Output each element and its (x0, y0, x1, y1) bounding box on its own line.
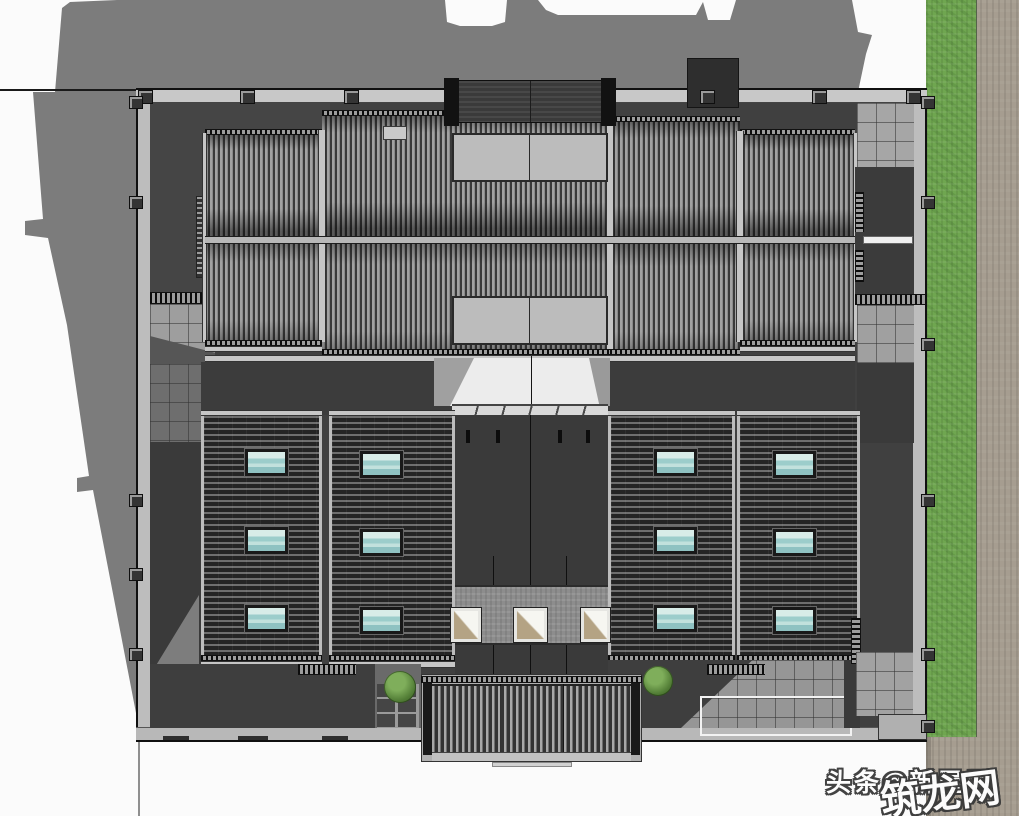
south-roof-top-fascia-b (329, 410, 455, 416)
skylight-window (245, 449, 288, 476)
skylight-window (654, 527, 697, 554)
pilaster-cap (921, 720, 935, 733)
grass-strip (926, 0, 977, 737)
site-boundary-line-west (0, 89, 140, 91)
southeast-courtyard (856, 652, 913, 716)
roof-panel-north-seam (529, 134, 530, 181)
eave-fascia-a (205, 346, 322, 352)
south-roof-top-fascia-c (608, 410, 735, 416)
shrub (643, 666, 673, 696)
eave-fascia-d (740, 346, 855, 352)
southeast-ridged-eave (707, 664, 765, 675)
pilaster-cap (129, 196, 143, 209)
pilaster-cap (344, 90, 359, 104)
shrub (384, 671, 416, 703)
entrance-step (492, 762, 572, 767)
north-gate-roof-seam (530, 81, 531, 122)
pilaster-cap (921, 96, 935, 109)
pilaster-cap (240, 90, 255, 104)
entrance-gate-seam-east (563, 684, 564, 754)
pilaster-cap (129, 96, 143, 109)
roof-panel-north (452, 133, 608, 182)
pilaster-cap (921, 338, 935, 351)
entrance-gate-seam-west (500, 684, 501, 754)
northeast-courtyard (857, 103, 914, 167)
skylight-window (654, 449, 697, 476)
east-connector-roof-1 (855, 192, 864, 232)
pilaster-cap (906, 90, 921, 104)
east-walkway (863, 236, 913, 244)
east-ridged-eave (855, 294, 927, 305)
door-mark (322, 736, 348, 740)
entrance-gate-roof (432, 684, 631, 754)
entrance-gate-eave-east (631, 683, 640, 755)
door-mark (163, 736, 189, 740)
canopy-post (466, 430, 470, 443)
canopy-post (586, 430, 590, 443)
skylight-window (773, 607, 816, 634)
south-roof-top-fascia-a (201, 410, 322, 416)
pilaster-cap (921, 494, 935, 507)
door-mark (238, 736, 268, 740)
entrance-gate-top-eave (421, 676, 642, 683)
cast-shadow-left (0, 88, 150, 743)
pilaster-cap (129, 648, 143, 661)
central-courtyard-seam (531, 356, 532, 406)
roof-panel-south (452, 296, 608, 345)
skylight-window (360, 529, 403, 556)
skylight-window (654, 605, 697, 632)
light-well (451, 608, 481, 642)
pilaster-cap (812, 90, 827, 104)
north-gate-post-west (444, 78, 459, 126)
skylight-window (245, 605, 288, 632)
skylight-window (245, 527, 288, 554)
canopy-post (558, 430, 562, 443)
aerial-render-canvas: 头条@新屋居 筑龙网 (0, 0, 1019, 816)
skylight-window (773, 529, 816, 556)
north-gate-post-east (601, 78, 616, 126)
east-connector-roof-2 (855, 250, 864, 282)
pilaster-cap (129, 568, 143, 581)
skylight-window (773, 451, 816, 478)
east-courtyard (857, 305, 914, 363)
southeast-path-outline (700, 696, 852, 736)
entrance-gate-fascia (432, 752, 631, 761)
southeast-step (878, 714, 927, 740)
canopy-post (496, 430, 500, 443)
pilaster-cap (129, 494, 143, 507)
pilaster-cap (921, 196, 935, 209)
eave-row-a (205, 129, 322, 135)
cast-shadow-top (0, 0, 880, 92)
ridge-cap (205, 236, 855, 244)
roof-panel-south-seam (529, 297, 530, 344)
eave-row-d (740, 129, 855, 135)
east-margin-roof (857, 363, 914, 443)
skylight-window (360, 607, 403, 634)
entrance-gate-eave-west (423, 683, 432, 755)
roof-panel-small (383, 126, 407, 140)
southwest-ridged-eave (298, 664, 356, 675)
light-well (581, 608, 610, 642)
pilaster-cap (700, 90, 715, 104)
eave-row-c (610, 116, 740, 122)
south-roof-top-fascia-d (737, 410, 860, 416)
site-boundary-line-south (138, 740, 140, 816)
light-well (514, 608, 547, 642)
pilaster-cap (921, 648, 935, 661)
skylight-window (360, 451, 403, 478)
